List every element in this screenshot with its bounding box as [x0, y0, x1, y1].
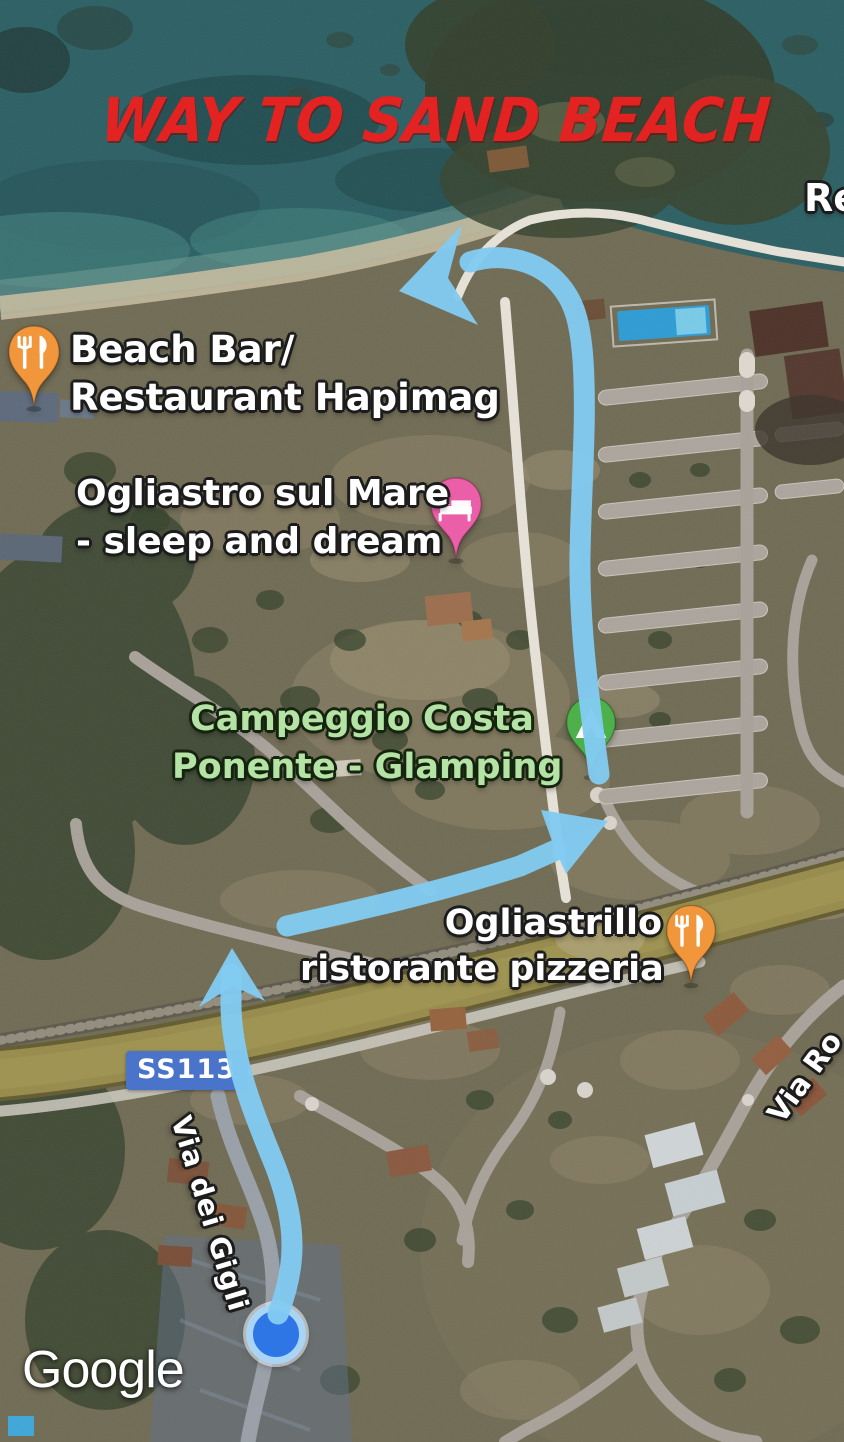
- route-badge-ss113: SS113: [126, 1051, 247, 1090]
- place-label-campeggio: Campeggio Costa Ponente - Glamping: [172, 696, 552, 791]
- pin-campeggio-campground: [564, 690, 618, 786]
- partial-label-top-right: Re: [804, 176, 844, 220]
- place-label-line: Restaurant Hapimag: [70, 374, 500, 422]
- place-label-beach-bar: Beach Bar/ Restaurant Hapimag: [70, 326, 500, 422]
- place-label-ogliastrillo: Ogliastrillo ristorante pizzeria: [300, 900, 662, 992]
- place-label-line: Ponente - Glamping: [172, 744, 552, 792]
- place-label-line: ristorante pizzeria: [300, 946, 662, 992]
- place-label-line: Ogliastrillo: [300, 900, 662, 946]
- route-badge-text: SS113: [137, 1054, 236, 1085]
- place-label-line: Beach Bar/: [70, 326, 500, 374]
- place-label-line: Ogliastro sul Mare: [76, 470, 449, 518]
- pin-ogliastrillo-restaurant: [664, 898, 718, 994]
- current-location-dot: [246, 1304, 306, 1364]
- place-label-line: Campeggio Costa: [172, 696, 552, 744]
- google-logo: Google: [22, 1340, 184, 1400]
- pin-beach-bar: [6, 320, 62, 416]
- place-label-ogliastro: Ogliastro sul Mare - sleep and dream: [76, 470, 449, 565]
- annotation-title: WAY TO SAND BEACH: [98, 86, 794, 156]
- map-canvas: Beach Bar/ Restaurant Hapimag Ogliastro …: [0, 0, 844, 1442]
- place-label-line: - sleep and dream: [76, 518, 449, 566]
- pin-shape: [667, 906, 716, 983]
- pin-shape: [9, 326, 59, 406]
